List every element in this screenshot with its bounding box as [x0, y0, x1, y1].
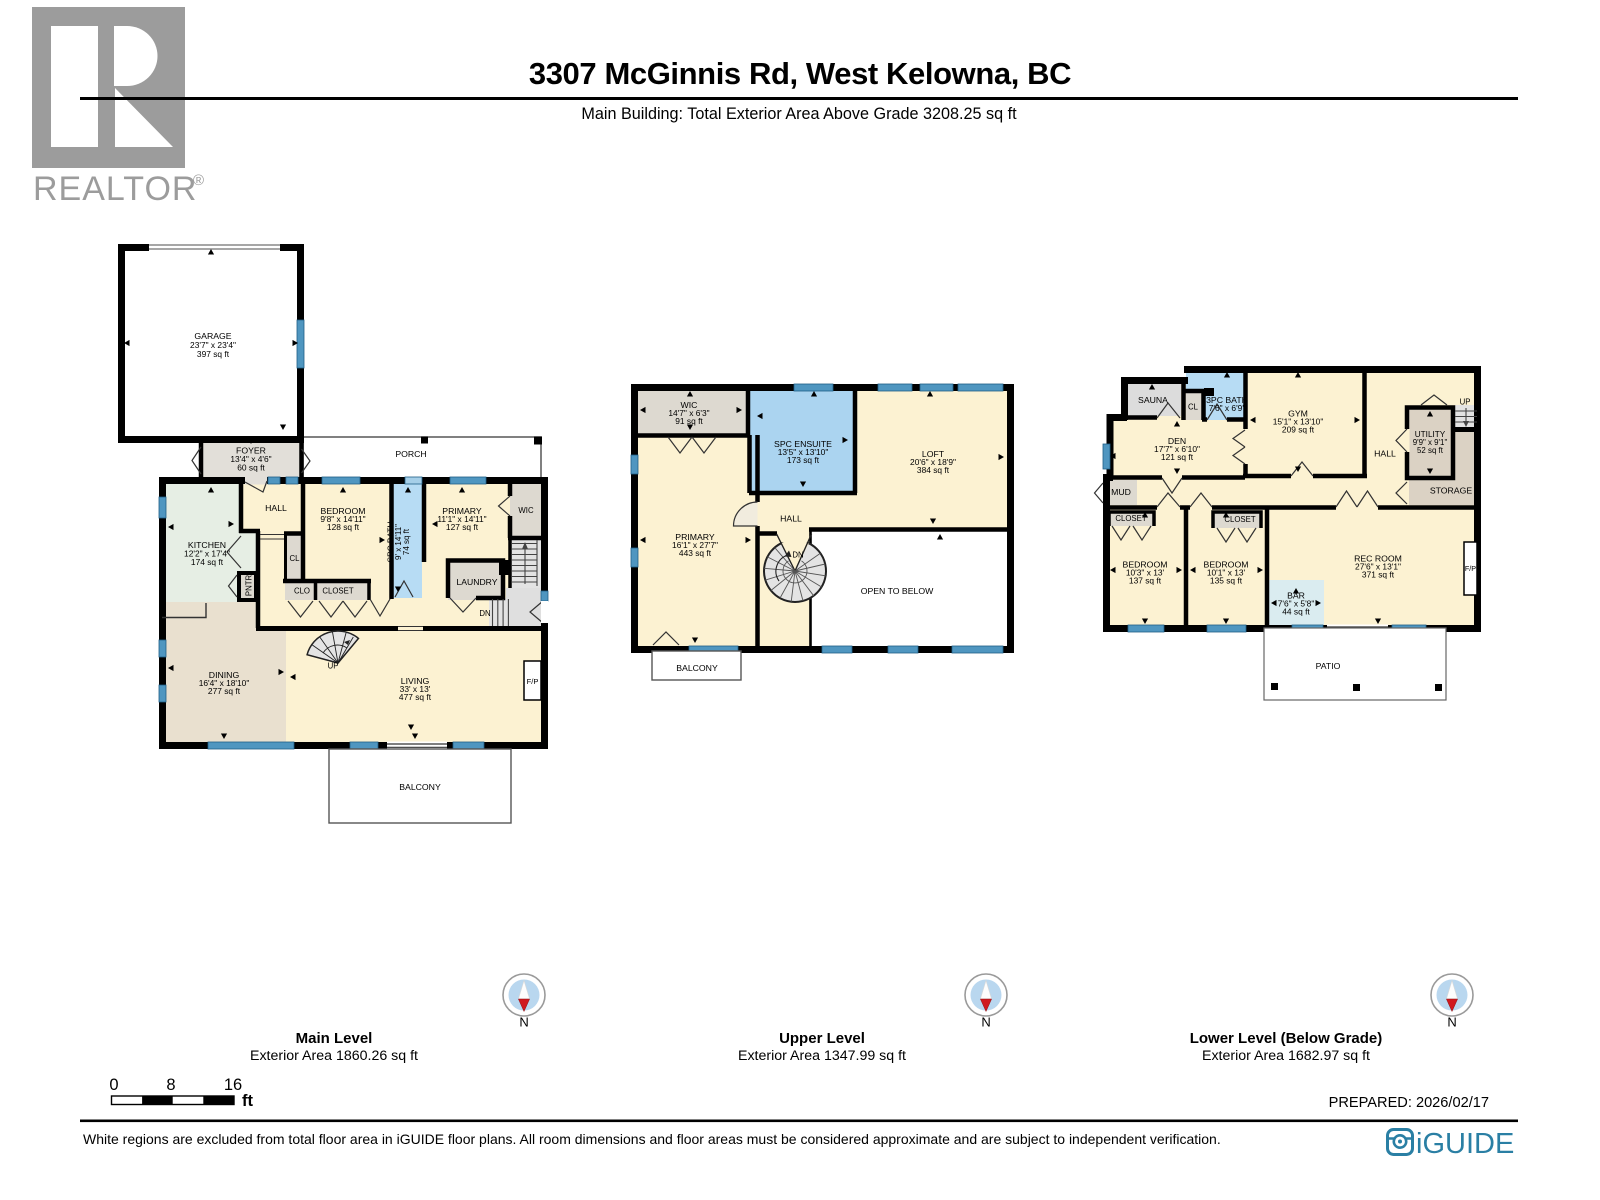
svg-text:0: 0	[109, 1076, 118, 1094]
svg-text:173 sq ft: 173 sq ft	[787, 455, 820, 465]
svg-text:Upper Level: Upper Level	[779, 1030, 865, 1047]
svg-text:16: 16	[224, 1076, 242, 1094]
svg-text:®: ®	[193, 172, 204, 189]
svg-text:174 sq ft: 174 sq ft	[191, 557, 224, 567]
svg-text:Exterior Area 1682.97 sq ft: Exterior Area 1682.97 sq ft	[1202, 1048, 1370, 1064]
svg-text:277 sq ft: 277 sq ft	[208, 686, 241, 696]
svg-text:BALCONY: BALCONY	[399, 782, 441, 792]
svg-text:CLO: CLO	[294, 587, 310, 596]
svg-text:PNTR: PNTR	[245, 575, 254, 597]
svg-text:CL: CL	[1188, 403, 1199, 412]
svg-text:MUD: MUD	[1111, 487, 1131, 497]
svg-text:Exterior Area 1860.26 sq ft: Exterior Area 1860.26 sq ft	[250, 1048, 418, 1064]
svg-text:Main Level: Main Level	[296, 1030, 373, 1047]
svg-text:LAUNDRY: LAUNDRY	[457, 577, 498, 587]
svg-text:ft: ft	[242, 1092, 253, 1110]
svg-text:F/P: F/P	[527, 677, 539, 686]
svg-text:HALL: HALL	[780, 514, 802, 524]
svg-text:OPEN TO BELOW: OPEN TO BELOW	[861, 586, 934, 596]
svg-text:Main Building: Total Exterior: Main Building: Total Exterior Area Above…	[581, 105, 1017, 123]
svg-text:60 sq ft: 60 sq ft	[237, 463, 265, 473]
svg-text:121 sq ft: 121 sq ft	[1161, 452, 1194, 462]
svg-text:SAUNA: SAUNA	[1138, 395, 1168, 405]
svg-text:74 sq ft: 74 sq ft	[402, 528, 411, 555]
svg-text:128 sq ft: 128 sq ft	[327, 522, 360, 532]
svg-text:iGUIDE: iGUIDE	[1416, 1128, 1514, 1160]
svg-text:135 sq ft: 135 sq ft	[1210, 576, 1243, 586]
svg-text:HALL: HALL	[265, 503, 287, 513]
svg-text:137 sq ft: 137 sq ft	[1129, 576, 1162, 586]
svg-text:127 sq ft: 127 sq ft	[446, 522, 479, 532]
svg-text:UP: UP	[1460, 398, 1471, 407]
svg-text:DN: DN	[479, 609, 490, 618]
svg-text:BALCONY: BALCONY	[676, 663, 718, 673]
svg-text:384 sq ft: 384 sq ft	[917, 465, 950, 475]
svg-text:CLOSET: CLOSET	[322, 587, 353, 596]
svg-text:CL: CL	[290, 554, 301, 563]
svg-text:8: 8	[166, 1076, 175, 1094]
svg-text:371 sq ft: 371 sq ft	[1362, 570, 1395, 580]
svg-text:44 sq ft: 44 sq ft	[1282, 607, 1310, 617]
svg-text:477 sq ft: 477 sq ft	[399, 692, 432, 702]
svg-text:REALTOR: REALTOR	[33, 170, 197, 208]
svg-text:Exterior Area 1347.99 sq ft: Exterior Area 1347.99 sq ft	[738, 1048, 906, 1064]
svg-text:UP: UP	[328, 662, 339, 671]
svg-text:3307 McGinnis Rd, West Kelowna: 3307 McGinnis Rd, West Kelowna, BC	[529, 56, 1071, 91]
svg-text:CLOSET: CLOSET	[1115, 514, 1146, 523]
svg-text:397 sq ft: 397 sq ft	[197, 349, 230, 359]
svg-text:White regions are excluded fro: White regions are excluded from total fl…	[83, 1131, 1221, 1147]
svg-text:WIC: WIC	[518, 506, 534, 515]
svg-text:Lower Level (Below Grade): Lower Level (Below Grade)	[1190, 1030, 1383, 1047]
svg-text:PORCH: PORCH	[395, 449, 426, 459]
svg-text:STORAGE: STORAGE	[1430, 486, 1473, 496]
svg-text:PREPARED: 2026/02/17: PREPARED: 2026/02/17	[1329, 1095, 1489, 1111]
svg-text:7'6" x 6'9": 7'6" x 6'9"	[1209, 403, 1246, 413]
svg-text:CLOSET: CLOSET	[1224, 515, 1255, 524]
svg-text:52 sq ft: 52 sq ft	[1417, 446, 1444, 455]
svg-text:F/P: F/P	[1465, 564, 1476, 573]
svg-text:209 sq ft: 209 sq ft	[1282, 425, 1315, 435]
svg-text:DN: DN	[792, 551, 803, 560]
svg-text:PATIO: PATIO	[1316, 661, 1341, 671]
svg-text:HALL: HALL	[1374, 449, 1396, 459]
svg-text:443 sq ft: 443 sq ft	[679, 548, 712, 558]
